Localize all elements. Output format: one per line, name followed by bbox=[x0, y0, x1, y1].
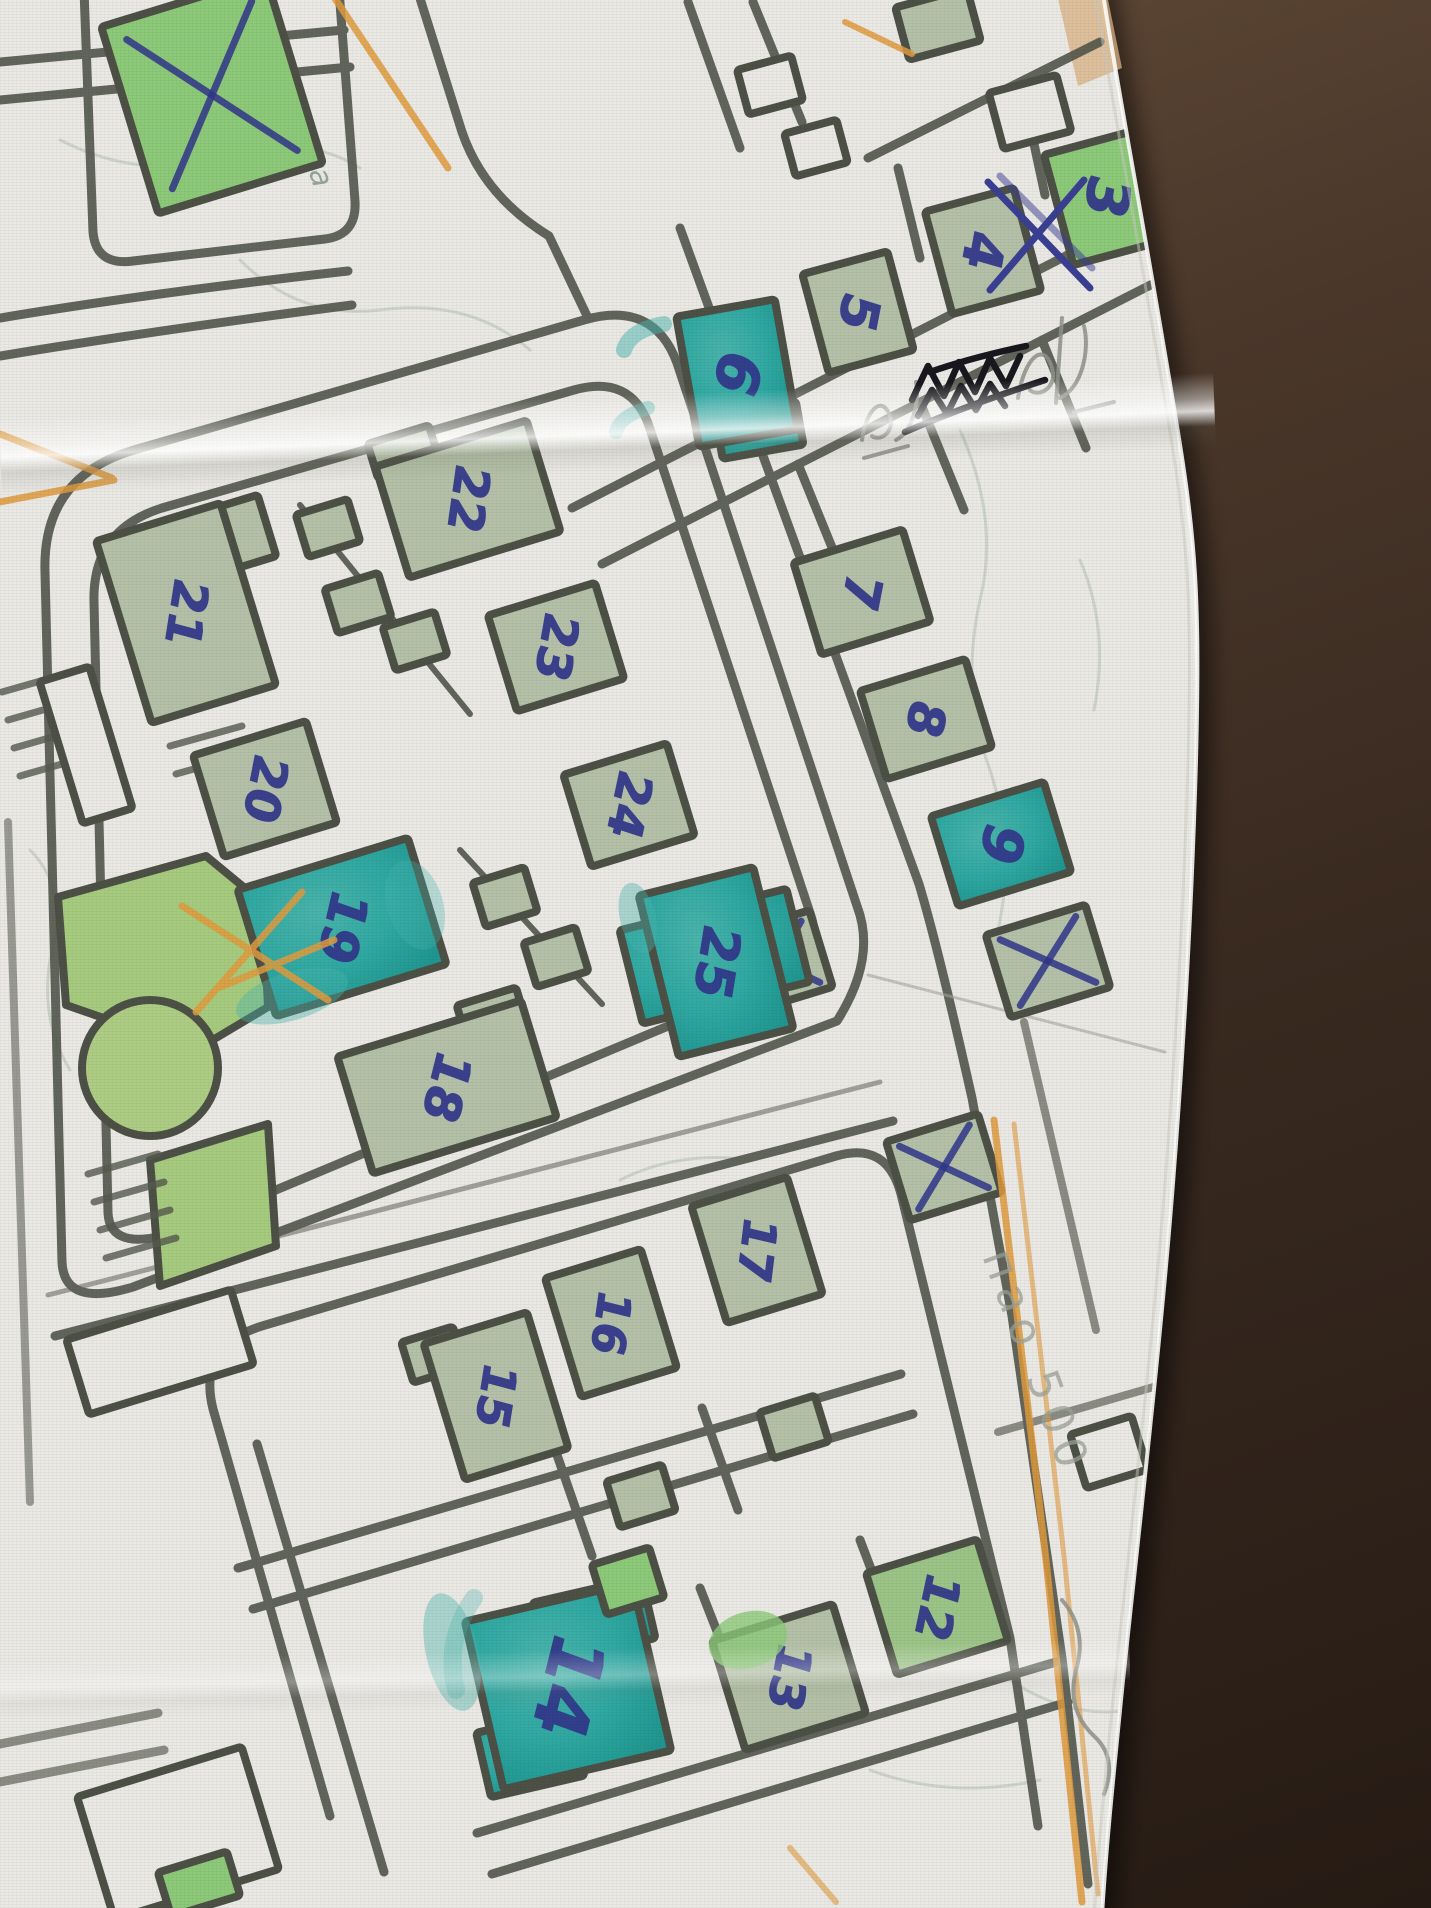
building bbox=[383, 612, 448, 671]
building bbox=[472, 867, 537, 927]
park-fountain-circle bbox=[82, 1000, 218, 1136]
handwritten-number: 16 bbox=[580, 1285, 641, 1361]
handwritten-number: 15 bbox=[465, 1357, 527, 1434]
building bbox=[784, 120, 848, 176]
building bbox=[989, 75, 1072, 149]
handwritten-number: 22 bbox=[436, 459, 500, 539]
map-photo-svg: Сливница bbox=[0, 0, 1431, 1908]
handwritten-number: 21 bbox=[154, 573, 219, 654]
building bbox=[523, 927, 588, 987]
handwritten-number: 17 bbox=[727, 1212, 788, 1288]
handwritten-number: 25 bbox=[681, 918, 750, 1005]
building bbox=[737, 56, 803, 115]
photo-of-annotated-map: Сливница bbox=[0, 0, 1431, 1908]
building bbox=[592, 1547, 665, 1614]
building bbox=[296, 499, 361, 557]
